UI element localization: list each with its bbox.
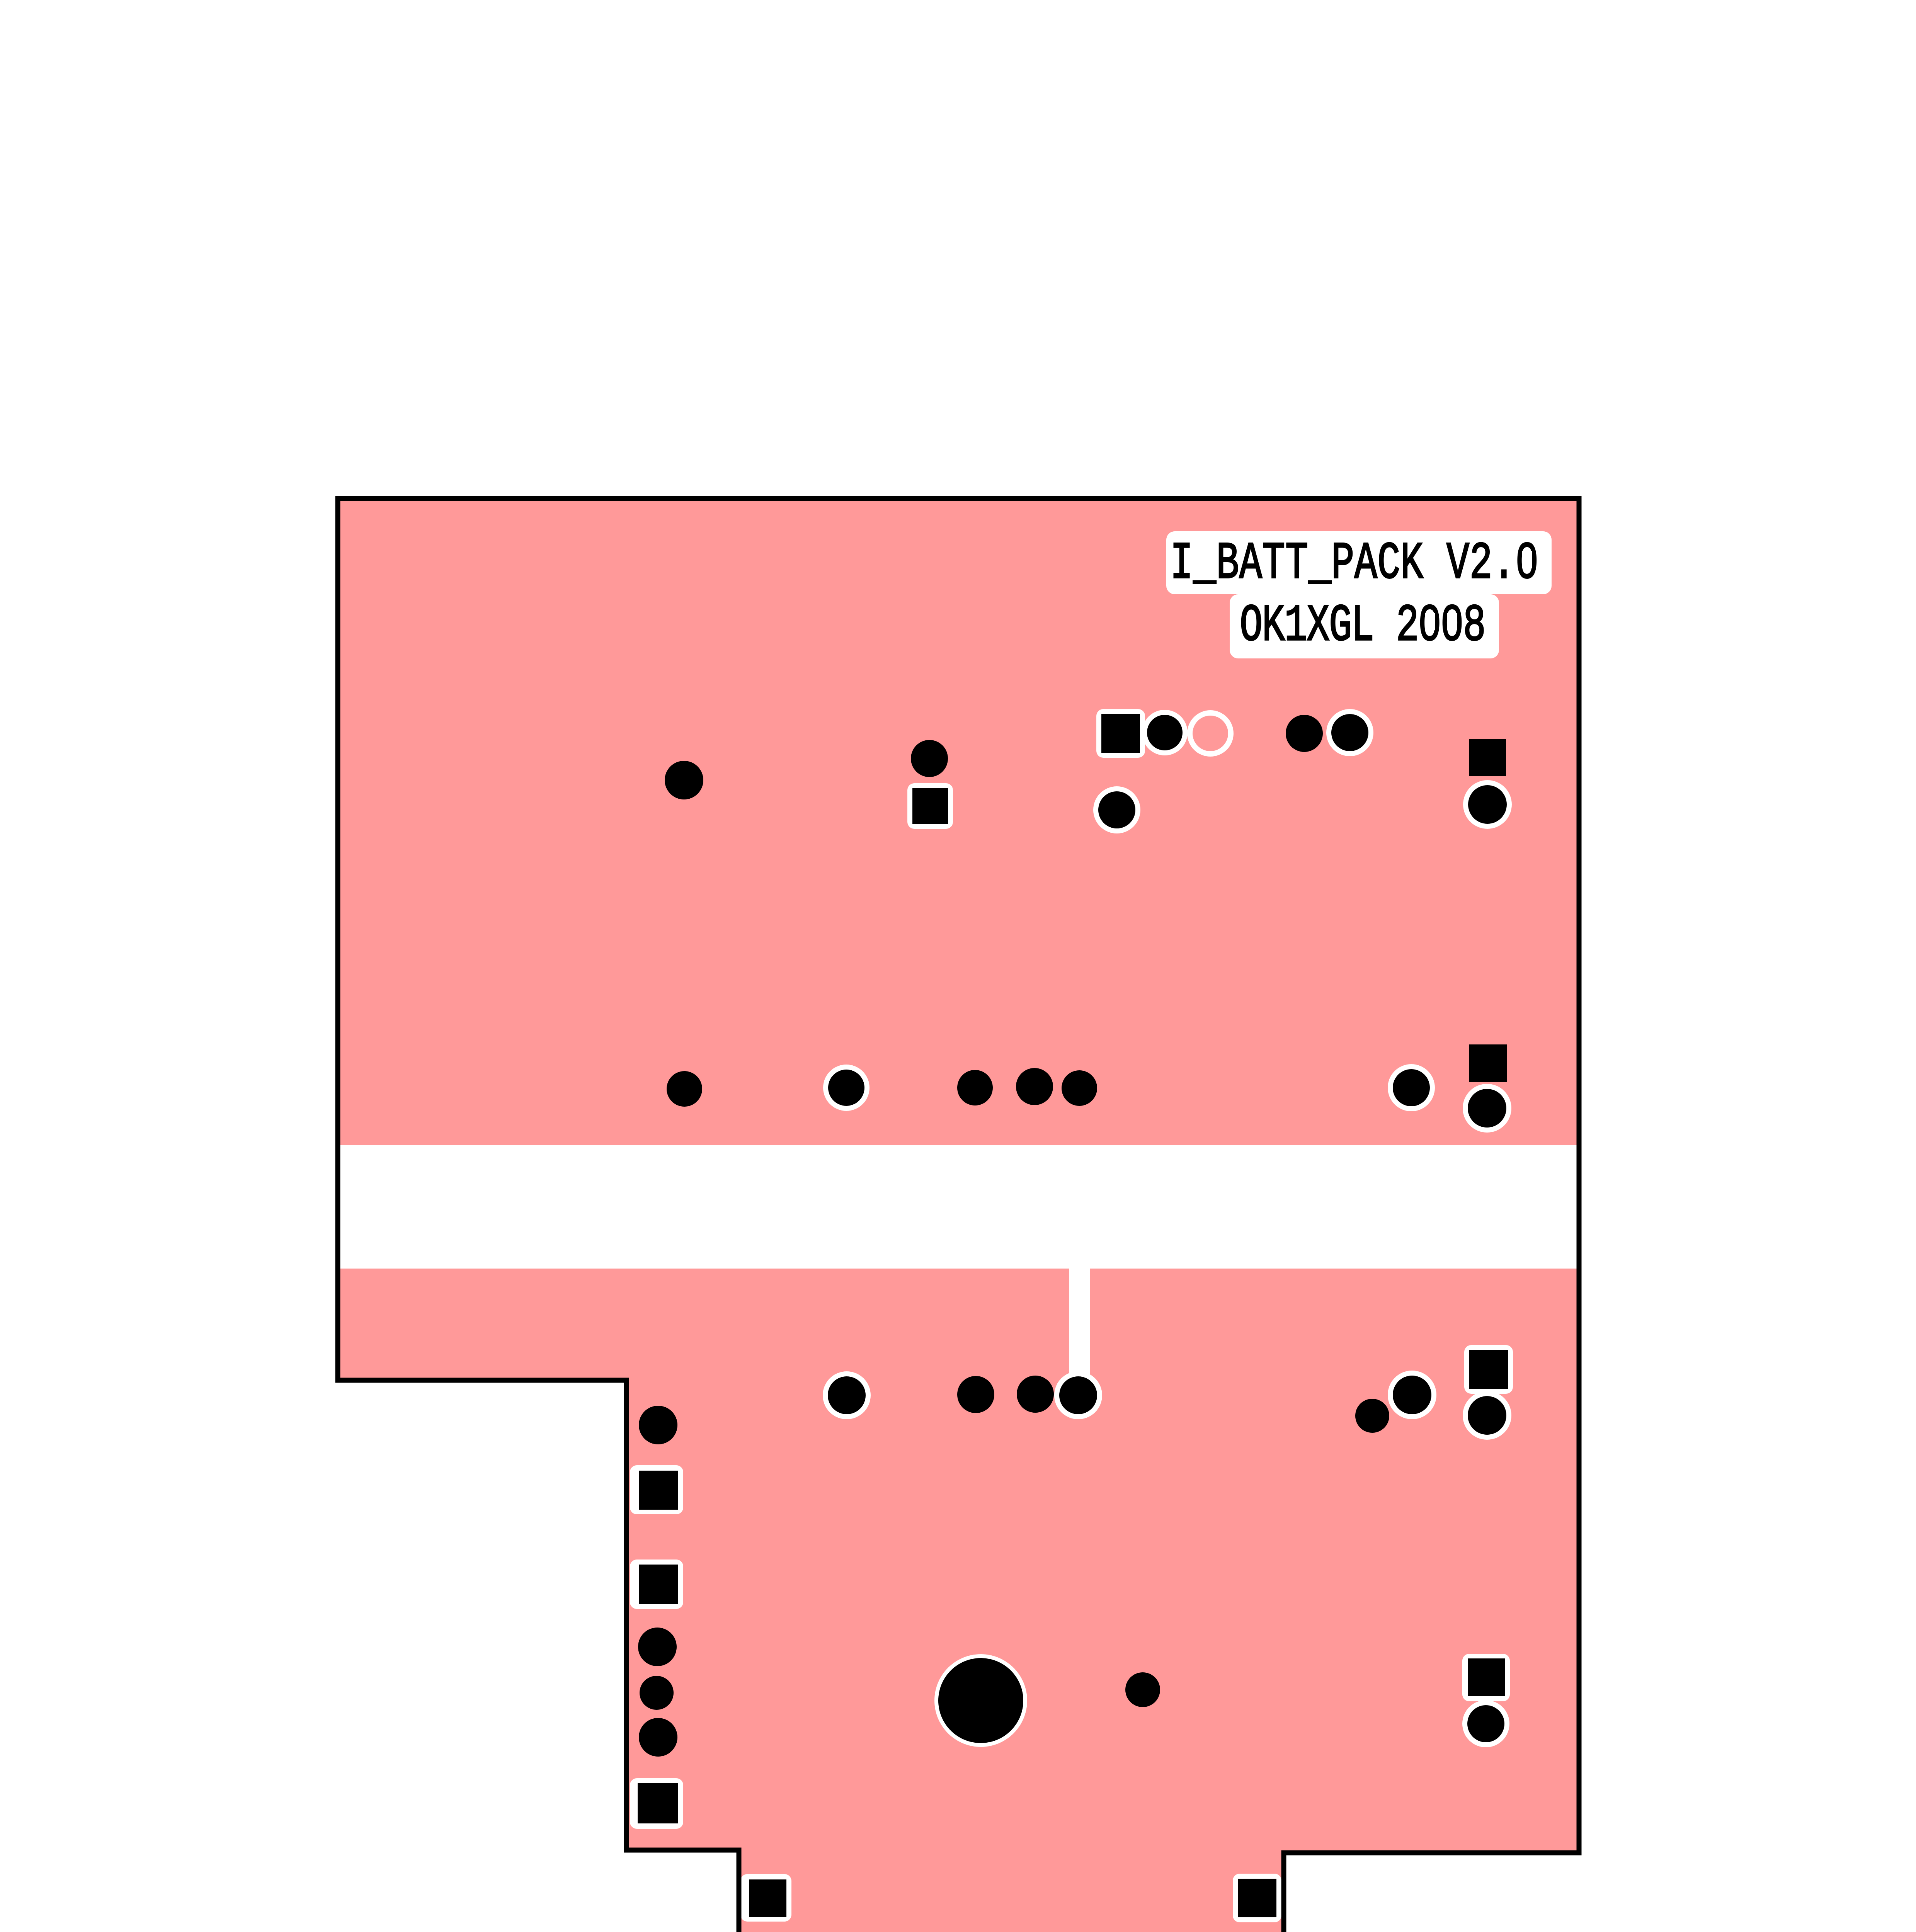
svg-text:I_BATT_PACK V2.0: I_BATT_PACK V2.0 xyxy=(1170,534,1538,594)
